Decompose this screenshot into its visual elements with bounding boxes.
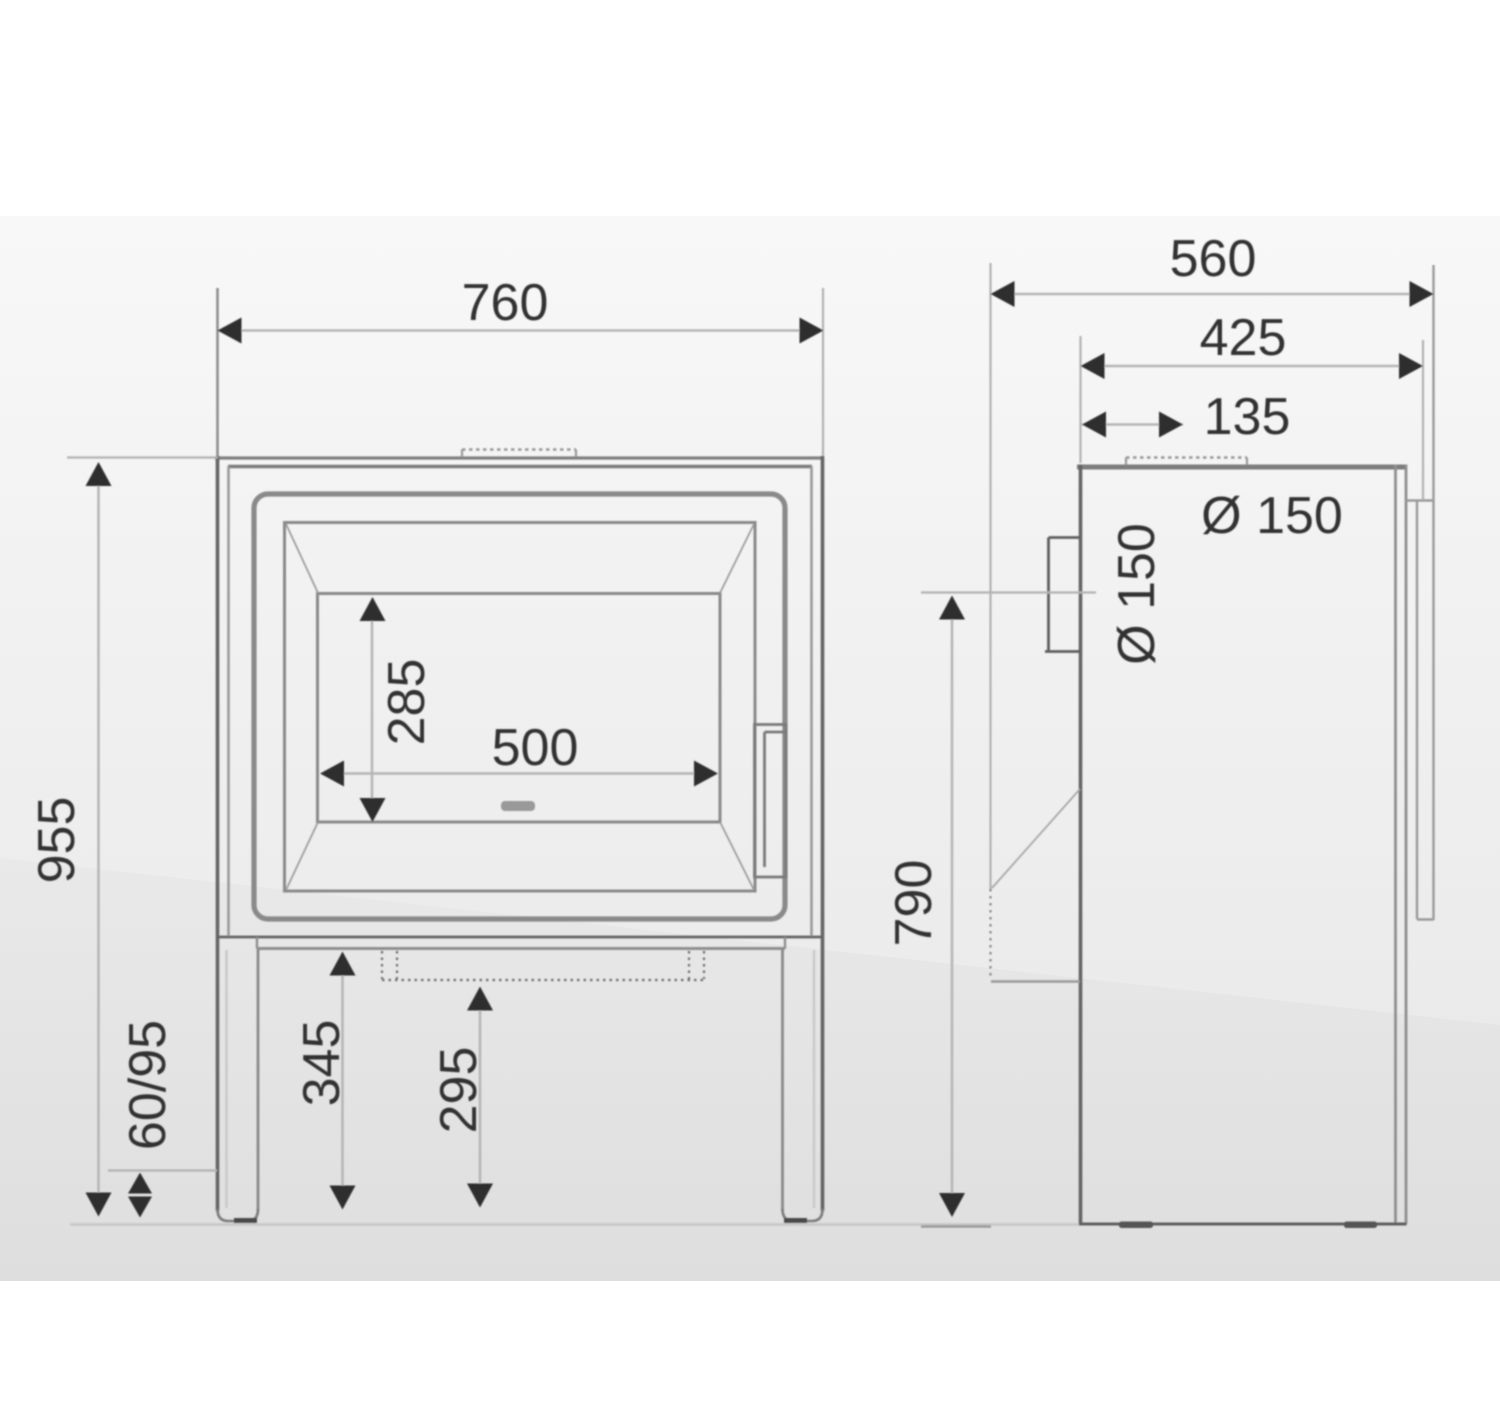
svg-text:Ø 150: Ø 150 — [1108, 523, 1166, 665]
svg-text:790: 790 — [885, 860, 943, 947]
svg-text:135: 135 — [1204, 388, 1291, 446]
svg-text:760: 760 — [462, 274, 549, 332]
svg-text:560: 560 — [1170, 230, 1257, 288]
svg-text:285: 285 — [378, 659, 436, 746]
svg-text:955: 955 — [28, 797, 86, 884]
svg-text:295: 295 — [430, 1047, 488, 1134]
svg-text:425: 425 — [1200, 309, 1287, 367]
svg-text:500: 500 — [492, 719, 579, 777]
svg-text:60/95: 60/95 — [119, 1020, 177, 1150]
svg-text:Ø 150: Ø 150 — [1201, 487, 1343, 545]
svg-text:345: 345 — [293, 1020, 351, 1107]
